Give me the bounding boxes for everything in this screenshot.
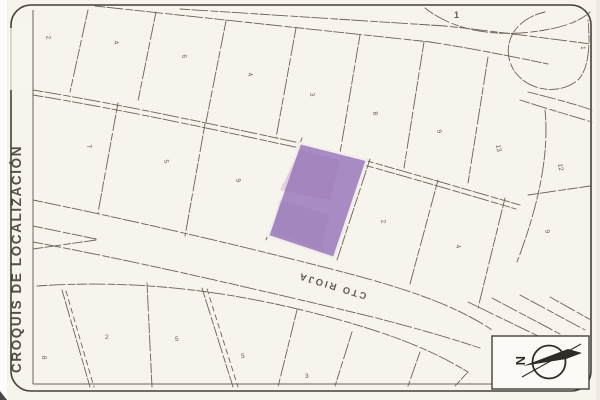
lot-number: 2 xyxy=(105,334,109,341)
location-sketch-map: CROQUIS DE LOCALIZACIÓN xyxy=(0,0,600,400)
map-title: CROQUIS DE LOCALIZACIÓN xyxy=(9,145,24,373)
croquis-page: CROQUIS DE LOCALIZACIÓN xyxy=(0,0,600,400)
lot-number: 1 xyxy=(454,10,459,20)
north-label: N xyxy=(513,356,528,365)
compass-box: N xyxy=(492,336,589,389)
lot-number: 5 xyxy=(241,353,245,360)
lot-number: 1 xyxy=(579,46,586,50)
paper-edge-strip xyxy=(0,0,7,400)
lot-number: 5 xyxy=(175,336,179,343)
lot-number: 3 xyxy=(305,373,309,380)
scan-shadow-right xyxy=(596,0,600,400)
title-fade-artifact xyxy=(8,28,30,90)
